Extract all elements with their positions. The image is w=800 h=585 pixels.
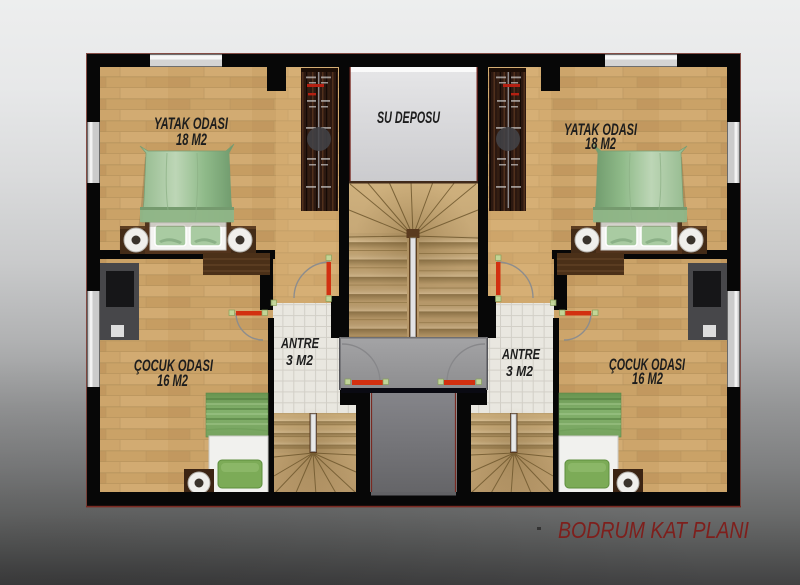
svg-text:18 M2: 18 M2 <box>176 131 207 149</box>
svg-text:16 M2: 16 M2 <box>632 370 663 388</box>
svg-text:BODRUM KAT PLANI: BODRUM KAT PLANI <box>558 517 749 543</box>
svg-text:ANTRE: ANTRE <box>280 335 319 352</box>
svg-text:ANTRE: ANTRE <box>501 346 540 363</box>
svg-text:16 M2: 16 M2 <box>157 372 188 390</box>
svg-text:18 M2: 18 M2 <box>585 135 616 153</box>
svg-text:3 M2: 3 M2 <box>506 363 534 380</box>
svg-text:SU DEPOSU: SU DEPOSU <box>377 109 441 127</box>
svg-text:3 M2: 3 M2 <box>286 352 314 369</box>
